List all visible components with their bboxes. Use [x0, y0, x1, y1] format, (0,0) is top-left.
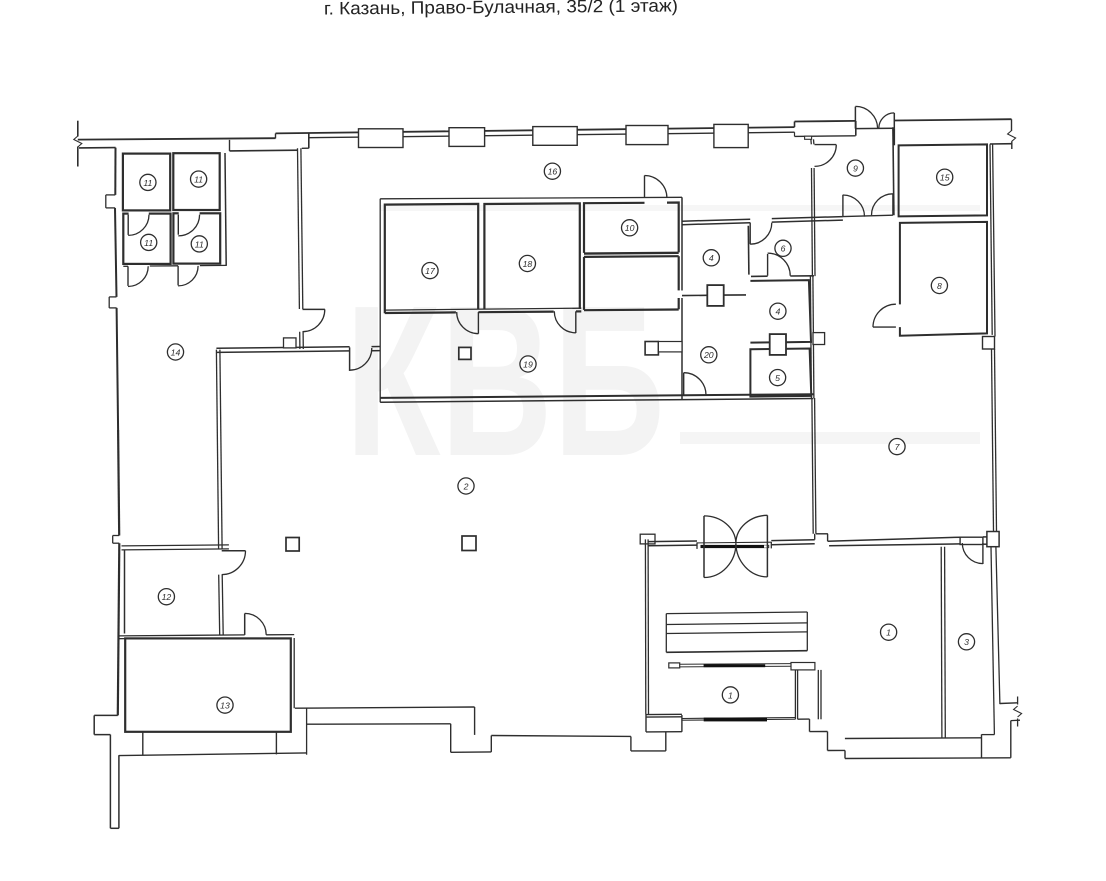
- svg-text:9: 9: [853, 164, 858, 174]
- svg-text:4: 4: [709, 253, 714, 263]
- svg-text:3: 3: [964, 637, 969, 647]
- svg-text:11: 11: [194, 175, 203, 185]
- svg-text:15: 15: [940, 173, 950, 183]
- svg-text:10: 10: [625, 223, 635, 233]
- svg-text:17: 17: [425, 266, 436, 276]
- svg-text:13: 13: [220, 701, 230, 711]
- svg-text:6: 6: [781, 244, 786, 254]
- svg-text:2: 2: [463, 481, 469, 491]
- svg-text:19: 19: [523, 359, 533, 369]
- svg-text:16: 16: [548, 167, 558, 177]
- svg-text:12: 12: [162, 592, 172, 602]
- svg-text:г. Казань, Право-Булачная, 35/: г. Казань, Право-Булачная, 35/2 (1 этаж): [324, 0, 678, 19]
- svg-text:4: 4: [775, 307, 780, 317]
- svg-text:20: 20: [703, 350, 714, 360]
- svg-text:14: 14: [171, 347, 181, 357]
- svg-text:КВБ: КВБ: [345, 260, 665, 501]
- svg-text:18: 18: [523, 259, 533, 269]
- svg-text:1: 1: [886, 628, 891, 638]
- svg-text:1: 1: [728, 690, 733, 700]
- svg-text:11: 11: [143, 178, 152, 188]
- svg-text:5: 5: [775, 373, 780, 383]
- svg-text:11: 11: [144, 238, 153, 248]
- svg-text:8: 8: [937, 281, 942, 291]
- svg-text:11: 11: [195, 239, 204, 249]
